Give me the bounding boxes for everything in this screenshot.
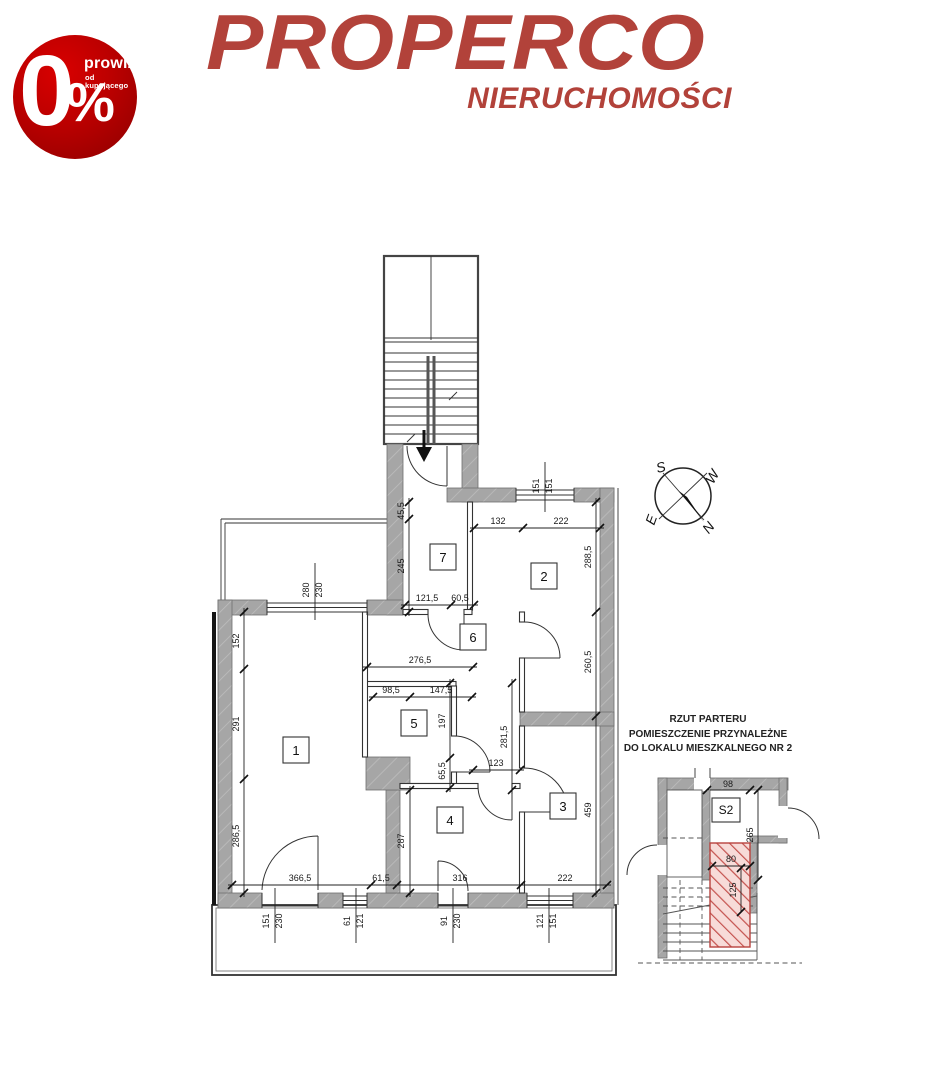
svg-text:151: 151 bbox=[544, 478, 554, 493]
inset-title-line3: DO LOKALU MIESZKALNEGO NR 2 bbox=[624, 743, 793, 754]
svg-text:222: 222 bbox=[557, 873, 572, 883]
svg-text:230: 230 bbox=[274, 913, 284, 928]
window-dimension-top: 151 151 bbox=[531, 478, 554, 493]
window-dimension-room1: 280 230 bbox=[301, 582, 324, 597]
svg-text:121: 121 bbox=[355, 913, 365, 928]
svg-text:5: 5 bbox=[410, 716, 417, 731]
svg-text:281,5: 281,5 bbox=[499, 726, 509, 749]
svg-text:2: 2 bbox=[540, 569, 547, 584]
compass-e: E bbox=[642, 512, 660, 527]
compass-rose: S W E N bbox=[642, 458, 723, 536]
boundary-edge bbox=[212, 612, 216, 905]
svg-text:6: 6 bbox=[469, 630, 476, 645]
svg-text:147,5: 147,5 bbox=[430, 685, 453, 695]
staircase bbox=[384, 256, 478, 462]
room-label-6: 6 bbox=[460, 624, 486, 650]
inset-annex-plan: RZUT PARTERU POMIESZCZENIE PRZYNALEŻNE D… bbox=[624, 714, 819, 963]
svg-text:80: 80 bbox=[726, 854, 736, 864]
svg-text:121,5: 121,5 bbox=[416, 593, 439, 603]
room-label-s2: S2 bbox=[712, 798, 740, 822]
svg-text:291: 291 bbox=[231, 716, 241, 731]
svg-text:132: 132 bbox=[490, 516, 505, 526]
compass-s: S bbox=[654, 458, 668, 476]
svg-text:222: 222 bbox=[553, 516, 568, 526]
svg-text:125: 125 bbox=[728, 882, 738, 897]
window-dimension-b2: 61 121 bbox=[342, 913, 365, 928]
svg-text:286,5: 286,5 bbox=[231, 825, 241, 848]
window-dimension-b3: 91 230 bbox=[439, 913, 462, 928]
svg-text:151: 151 bbox=[531, 478, 541, 493]
svg-text:230: 230 bbox=[452, 913, 462, 928]
svg-text:265: 265 bbox=[745, 827, 755, 842]
svg-text:45,5: 45,5 bbox=[396, 502, 406, 520]
svg-text:459: 459 bbox=[583, 802, 593, 817]
floor-plan-page: 0 % prowizji od kupującego PROPERCO NIER… bbox=[0, 0, 938, 1078]
svg-text:152: 152 bbox=[231, 633, 241, 648]
svg-text:197: 197 bbox=[437, 713, 447, 728]
room-label-5: 5 bbox=[401, 710, 427, 736]
window-dimension-b4: 121 151 bbox=[535, 913, 558, 928]
svg-text:245: 245 bbox=[396, 558, 406, 573]
windows bbox=[262, 488, 574, 908]
svg-text:4: 4 bbox=[446, 813, 453, 828]
svg-text:316: 316 bbox=[452, 873, 467, 883]
svg-text:98,5: 98,5 bbox=[382, 685, 400, 695]
svg-text:260,5: 260,5 bbox=[583, 651, 593, 674]
floor-plan-drawing: 1 2 3 4 5 6 7 bbox=[0, 0, 938, 1078]
inset-title-line1: RZUT PARTERU bbox=[669, 714, 746, 725]
svg-text:1: 1 bbox=[292, 743, 299, 758]
compass-needle bbox=[679, 491, 704, 522]
window-dimension-b1: 151 230 bbox=[261, 913, 284, 928]
compass-w: W bbox=[702, 465, 723, 486]
svg-text:121: 121 bbox=[535, 913, 545, 928]
svg-text:276,5: 276,5 bbox=[409, 655, 432, 665]
svg-text:287: 287 bbox=[396, 833, 406, 848]
svg-text:61,5: 61,5 bbox=[372, 873, 390, 883]
room-label-3: 3 bbox=[550, 793, 576, 819]
svg-text:3: 3 bbox=[559, 799, 566, 814]
room-label-4: 4 bbox=[437, 807, 463, 833]
svg-text:288,5: 288,5 bbox=[583, 546, 593, 569]
dimension-lines bbox=[228, 462, 611, 943]
svg-text:280: 280 bbox=[301, 582, 311, 597]
svg-text:366,5: 366,5 bbox=[289, 873, 312, 883]
svg-text:65,5: 65,5 bbox=[437, 762, 447, 780]
dimension-labels: 132 222 121,5 60,5 276,5 98,5 147,5 123 … bbox=[231, 478, 593, 928]
room-label-1: 1 bbox=[283, 737, 309, 763]
svg-text:7: 7 bbox=[439, 550, 446, 565]
stair-rail bbox=[427, 356, 430, 444]
inset-title-line2: POMIESZCZENIE PRZYNALEŻNE bbox=[629, 727, 788, 740]
svg-text:91: 91 bbox=[439, 916, 449, 926]
svg-text:61: 61 bbox=[342, 916, 352, 926]
svg-text:60,5: 60,5 bbox=[451, 593, 469, 603]
walls bbox=[218, 444, 614, 908]
svg-text:S2: S2 bbox=[719, 803, 734, 817]
svg-text:151: 151 bbox=[548, 913, 558, 928]
room-label-2: 2 bbox=[531, 563, 557, 589]
compass-n: N bbox=[699, 518, 718, 537]
room-label-7: 7 bbox=[430, 544, 456, 570]
svg-text:151: 151 bbox=[261, 913, 271, 928]
svg-text:123: 123 bbox=[488, 758, 503, 768]
svg-text:98: 98 bbox=[723, 779, 733, 789]
svg-text:230: 230 bbox=[314, 582, 324, 597]
